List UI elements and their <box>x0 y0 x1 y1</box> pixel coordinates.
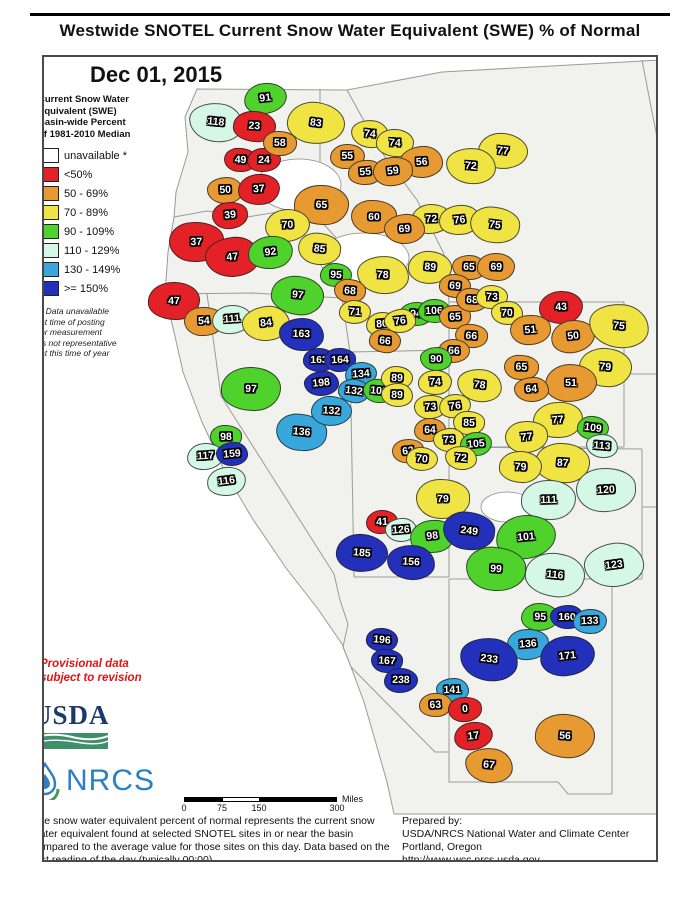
basin-value-label: 56 <box>559 730 571 741</box>
basin-value-label: 116 <box>546 569 564 581</box>
basin-value-label: 73 <box>486 292 498 303</box>
basin-value-label: 85 <box>314 243 327 255</box>
legend-class-label: 130 - 149% <box>64 264 120 276</box>
legend-row: 130 - 149% <box>42 260 168 279</box>
basin-value-label: 98 <box>426 530 439 542</box>
prepared-by-city: Portland, Oregon <box>402 841 652 854</box>
legend-color-swatch <box>42 224 59 239</box>
basin-value-label: 196 <box>373 634 391 646</box>
legend-class-label: unavailable * <box>64 150 127 162</box>
basin-value-label: 83 <box>310 117 323 129</box>
basin-region: 133 <box>573 608 607 634</box>
basin-value-label: 89 <box>391 390 403 401</box>
basin-value-label: 113 <box>593 440 611 452</box>
prepared-by-org: USDA/NRCS National Water and Climate Cen… <box>402 828 652 841</box>
basin-value-label: 77 <box>521 431 534 443</box>
basin-value-label: 91 <box>259 93 272 105</box>
basin-value-label: 95 <box>534 612 546 623</box>
usda-logo: USDA <box>42 700 132 756</box>
basin-value-label: 85 <box>463 418 475 429</box>
basin-value-label: 74 <box>389 137 401 148</box>
basin-value-label: 163 <box>292 328 310 339</box>
basin-value-label: 49 <box>235 155 247 166</box>
basin-value-label: 76 <box>449 400 462 412</box>
basin-value-label: 118 <box>207 117 225 129</box>
basin-value-label: 79 <box>437 494 449 505</box>
basin-value-label: 50 <box>219 185 231 196</box>
legend-color-swatch <box>42 281 59 296</box>
basin-value-label: 66 <box>465 330 477 341</box>
basin-value-label: 79 <box>515 462 527 473</box>
basin-value-label: 132 <box>345 385 364 398</box>
basin-value-label: 97 <box>245 384 257 395</box>
legend-class-label: <50% <box>64 169 92 181</box>
basin-value-label: 133 <box>581 615 599 626</box>
basin-value-label: 89 <box>391 372 403 383</box>
basin-value-label: 126 <box>392 524 410 536</box>
basin-value-label: 238 <box>392 675 410 686</box>
basin-value-label: 39 <box>224 209 237 221</box>
basin-value-label: 77 <box>552 414 564 425</box>
legend-color-swatch <box>42 148 59 163</box>
basin-value-label: 101 <box>517 531 535 543</box>
basin-value-label: 76 <box>454 214 467 226</box>
basin-value-label: 59 <box>387 166 400 178</box>
basin-value-label: 69 <box>490 262 502 273</box>
legend-row: 90 - 109% <box>42 222 168 241</box>
map-date: Dec 01, 2015 <box>90 62 222 88</box>
basin-value-label: 123 <box>605 559 624 572</box>
legend-color-swatch <box>42 243 59 258</box>
legend-color-swatch <box>42 186 59 201</box>
basin-value-label: 116 <box>218 475 236 487</box>
legend-row: unavailable * <box>42 146 168 165</box>
basin-value-label: 132 <box>322 405 340 417</box>
basin-value-label: 0 <box>462 704 469 715</box>
basin-value-label: 65 <box>515 363 527 374</box>
page-title: Westwide SNOTEL Current Snow Water Equiv… <box>0 21 700 41</box>
basin-value-label: 74 <box>429 378 441 389</box>
basin-value-label: 185 <box>353 547 371 559</box>
basin-value-label: 111 <box>223 314 240 326</box>
basin-value-label: 109 <box>584 422 603 435</box>
basin-value-label: 77 <box>497 145 510 157</box>
basin-value-label: 92 <box>265 247 278 259</box>
basin-value-label: 72 <box>465 160 477 171</box>
legend-row: <50% <box>42 165 168 184</box>
basin-value-label: 98 <box>220 432 232 443</box>
basin-value-label: 65 <box>315 200 327 211</box>
basin-region: 89 <box>381 383 413 407</box>
basin-value-label: 90 <box>430 354 442 365</box>
basin-value-label: 47 <box>168 296 180 307</box>
prepared-by-url: http://www.wcc.nrcs.usda.gov <box>402 854 652 862</box>
basin-value-label: 67 <box>483 760 496 772</box>
legend-color-swatch <box>42 262 59 277</box>
basin-value-label: 37 <box>190 237 202 248</box>
basin-value-label: 23 <box>248 121 260 132</box>
basin-value-label: 136 <box>519 638 537 650</box>
basin-region: 58 <box>263 130 297 155</box>
basin-value-label: 65 <box>463 261 475 272</box>
basin-value-label: 76 <box>394 315 407 327</box>
legend-class-label: 70 - 89% <box>64 207 108 219</box>
map-frame: 91 118 23 49 24 50 37 39 83 74 74 58 55 … <box>42 55 658 862</box>
scale-tick: 75 <box>217 803 227 813</box>
basin-value-label: 71 <box>349 306 361 317</box>
basin-value-label: 84 <box>260 318 273 330</box>
scale-tick: 0 <box>181 803 186 813</box>
basin-value-label: 117 <box>197 451 214 462</box>
basin-region: 69 <box>477 253 516 282</box>
legend-class-label: 90 - 109% <box>64 226 114 238</box>
legend-color-swatch <box>42 167 59 182</box>
basin-value-label: 54 <box>198 317 210 328</box>
basin-value-label: 50 <box>567 330 580 342</box>
basin-value-label: 74 <box>364 128 377 139</box>
legend-class-label: 50 - 69% <box>64 188 108 200</box>
basin-value-label: 73 <box>425 401 437 412</box>
basin-value-label: 73 <box>443 434 455 445</box>
basin-value-label: 249 <box>460 525 479 538</box>
basin-value-label: 70 <box>501 308 513 319</box>
map-description: The snow water equivalent percent of nor… <box>42 815 400 862</box>
scale-bar-ticks: 0 75 150 300 <box>184 802 354 813</box>
basin-value-label: 55 <box>341 152 353 163</box>
basin-value-label: 99 <box>490 563 502 574</box>
basin-region: 90 <box>420 347 452 371</box>
basin-value-label: 66 <box>379 335 392 347</box>
basin-value-label: 64 <box>525 385 537 396</box>
legend-row: 50 - 69% <box>42 184 168 203</box>
basin-value-label: 51 <box>565 378 577 389</box>
basin-value-label: 17 <box>467 730 480 742</box>
basin-value-label: 171 <box>558 650 577 662</box>
nrcs-logo-text: NRCS <box>66 764 155 798</box>
basin-value-label: 141 <box>443 685 461 696</box>
scale-tick: 150 <box>251 803 266 813</box>
legend-row: >= 150% <box>42 279 168 298</box>
basin-value-label: 156 <box>402 557 420 568</box>
map-canvas: 91 118 23 49 24 50 37 39 83 74 74 58 55 … <box>42 55 658 862</box>
legend: Current Snow Water Equivalent (SWE) Basi… <box>42 94 168 359</box>
basin-value-label: 68 <box>344 285 357 296</box>
basin-value-label: 120 <box>597 484 615 495</box>
basin-region: 238 <box>384 667 418 693</box>
usda-field-swoosh-icon <box>42 731 108 751</box>
basin-value-label: 63 <box>429 699 441 710</box>
nrcs-logo: NRCS <box>42 762 155 800</box>
basin-value-label: 78 <box>474 380 487 392</box>
basin-value-label: 167 <box>378 655 396 666</box>
basin-value-label: 70 <box>282 220 294 231</box>
snotel-swe-map-page: Westwide SNOTEL Current Snow Water Equiv… <box>0 0 700 905</box>
basin-value-label: 70 <box>416 453 429 465</box>
basin-value-label: 47 <box>226 251 239 262</box>
scale-tick: 300 <box>329 803 344 813</box>
basin-value-label: 78 <box>377 270 389 281</box>
basin-value-label: 87 <box>557 457 569 468</box>
usda-logo-text: USDA <box>42 700 132 731</box>
basin-value-label: 72 <box>455 452 467 463</box>
basin-value-label: 58 <box>274 138 286 149</box>
basin-region: 97 <box>221 367 282 412</box>
basin-value-label: 37 <box>253 183 265 194</box>
legend-class-label: 110 - 129% <box>64 245 119 257</box>
basin-value-label: 164 <box>331 354 349 365</box>
basin-value-label: 24 <box>258 155 270 166</box>
legend-heading: Current Snow Water Equivalent (SWE) Basi… <box>42 94 168 140</box>
basin-value-label: 198 <box>312 378 331 390</box>
basin-value-label: 51 <box>524 324 537 335</box>
legend-footnote: * Data unavailable at time of posting or… <box>42 306 168 359</box>
water-drop-icon <box>42 762 62 800</box>
legend-row: 110 - 129% <box>42 241 168 260</box>
legend-color-swatch <box>42 205 59 220</box>
basin-value-label: 79 <box>599 361 611 372</box>
basin-region: 51 <box>545 364 598 403</box>
basin-value-label: 233 <box>480 653 499 666</box>
basin-value-label: 159 <box>223 448 241 460</box>
legend-class-label: >= 150% <box>64 283 108 295</box>
legend-row: 70 - 89% <box>42 203 168 222</box>
top-rule <box>30 13 670 16</box>
scale-unit-label: Miles <box>342 794 363 804</box>
basin-value-label: 97 <box>292 290 305 302</box>
basin-value-label: 69 <box>398 223 410 234</box>
basin-value-label: 60 <box>368 212 380 223</box>
basin-value-label: 56 <box>416 156 428 167</box>
basin-value-label: 136 <box>293 427 312 439</box>
provisional-note: Provisional data subject to revision <box>42 657 142 685</box>
prepared-by-label: Prepared by: <box>402 815 652 828</box>
legend-rows: unavailable * <50% 50 - 69% 70 - 89% 90 … <box>42 146 168 298</box>
basin-value-label: 111 <box>541 495 558 506</box>
basin-value-label: 55 <box>359 167 372 178</box>
basin-value-label: 65 <box>449 311 461 322</box>
basin-value-label: 43 <box>555 301 567 312</box>
basin-value-label: 75 <box>489 219 502 231</box>
basin-value-label: 89 <box>424 261 437 272</box>
scale-bar: 0 75 150 300 Miles <box>184 797 354 813</box>
prepared-by-block: Prepared by: USDA/NRCS National Water an… <box>402 815 652 862</box>
basin-value-label: 75 <box>613 320 626 332</box>
basin-value-label: 72 <box>425 214 437 225</box>
